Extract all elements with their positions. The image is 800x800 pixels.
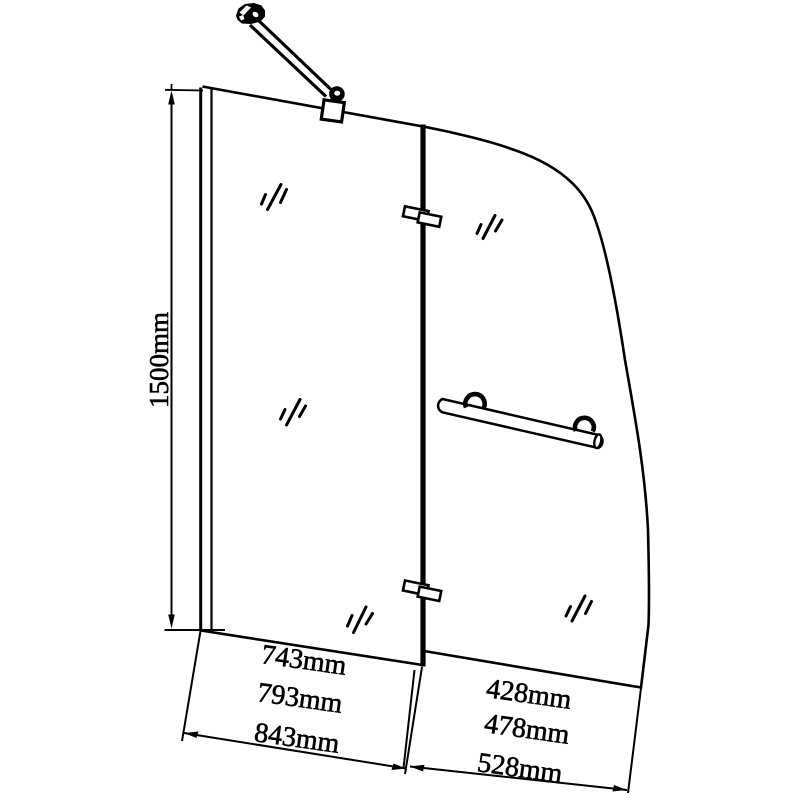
svg-text:1500mm: 1500mm xyxy=(144,312,174,408)
